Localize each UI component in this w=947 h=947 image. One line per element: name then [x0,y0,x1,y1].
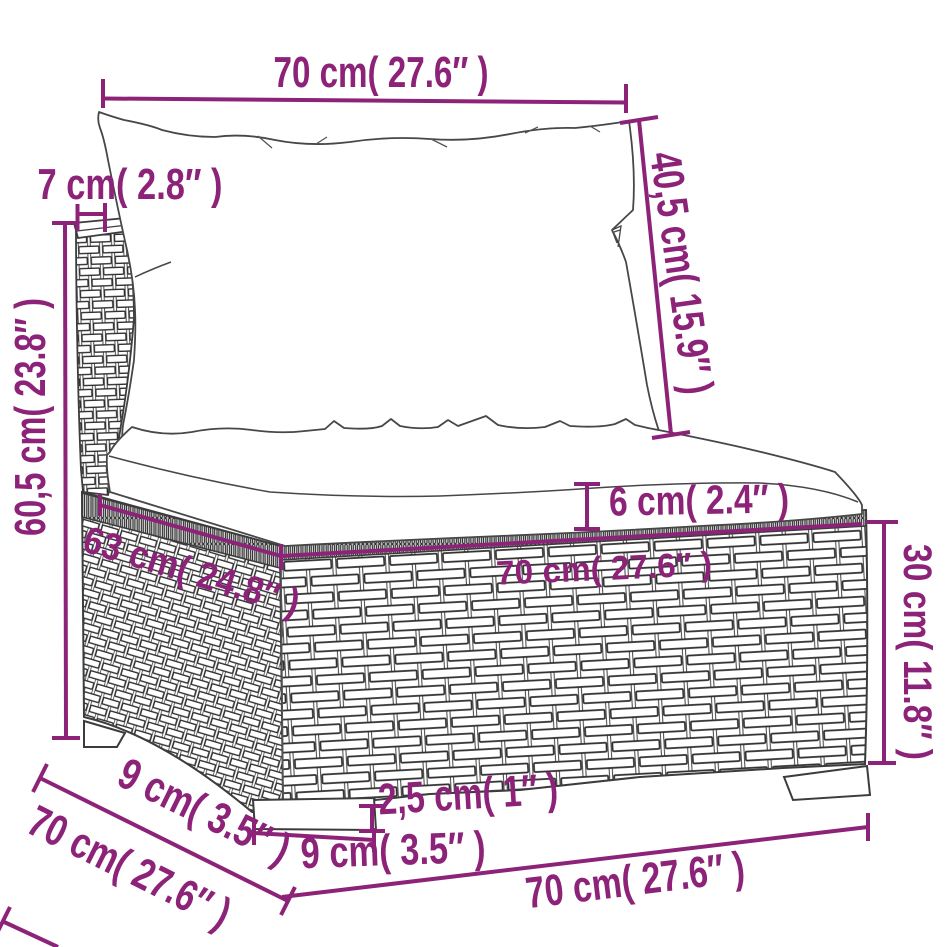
svg-text:60,5 cm( 23.8″ ): 60,5 cm( 23.8″ ) [6,298,55,536]
svg-text:30 cm( 11.8″ ): 30 cm( 11.8″ ) [895,544,939,760]
svg-text:9 cm( 3.5″ ): 9 cm( 3.5″ ) [300,823,487,878]
svg-text:7 cm( 2.8″ ): 7 cm( 2.8″ ) [38,160,223,209]
svg-text:6 cm( 2.4″ ): 6 cm( 2.4″ ) [609,475,790,524]
svg-text:70 cm( 27.6″ ): 70 cm( 27.6″ ) [274,48,489,97]
